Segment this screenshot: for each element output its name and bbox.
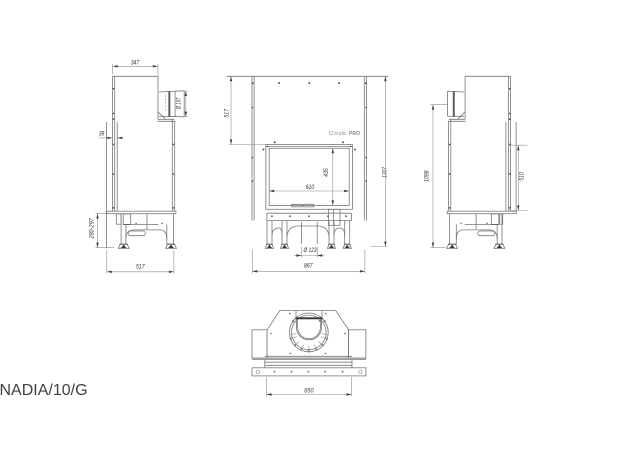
svg-text:435: 435 [323, 168, 330, 177]
svg-text:1307: 1307 [382, 166, 389, 177]
svg-text:NADIA/10/G: NADIA/10/G [0, 382, 88, 399]
svg-text:kratki: kratki [335, 131, 347, 137]
svg-text:610: 610 [306, 184, 315, 191]
svg-text:1098: 1098 [424, 170, 431, 182]
svg-text:39: 39 [99, 131, 105, 138]
svg-text:867: 867 [304, 263, 313, 270]
svg-text:517: 517 [224, 109, 231, 118]
svg-text:510: 510 [518, 172, 525, 181]
svg-text:Ø 123: Ø 123 [303, 247, 317, 254]
svg-text:PRO: PRO [349, 131, 360, 137]
svg-text:280-297: 280-297 [88, 218, 95, 240]
svg-text:517: 517 [136, 264, 145, 271]
svg-text:347: 347 [131, 60, 140, 67]
svg-text:650: 650 [304, 387, 314, 394]
svg-text:Ø 197: Ø 197 [176, 97, 183, 110]
